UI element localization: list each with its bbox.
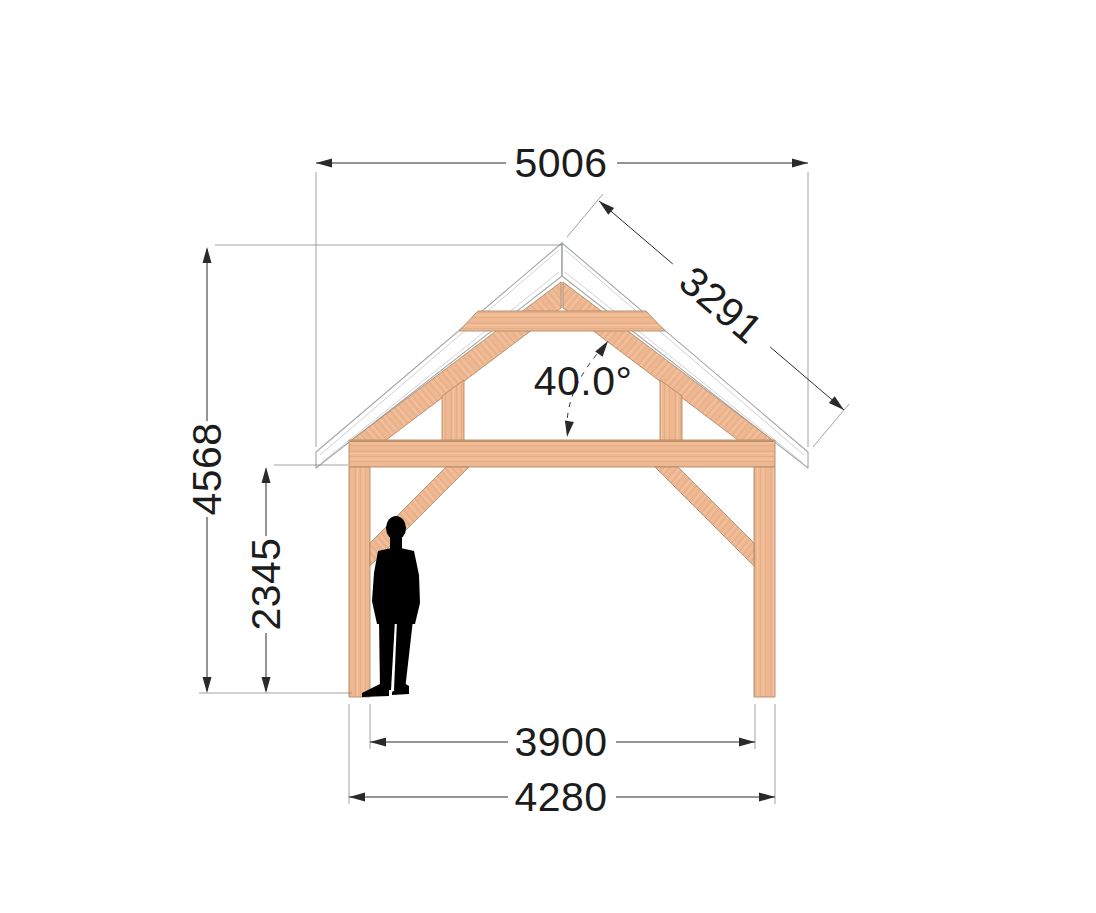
ext-line <box>813 404 849 447</box>
knee-brace-right <box>655 467 754 566</box>
dim-roof-angle: 40.0° <box>534 341 633 437</box>
silhouette-leg-right <box>394 620 413 690</box>
arrow-lower <box>829 396 844 410</box>
dim-clearance-height: 2345 <box>243 465 348 693</box>
dimensions: 5006 3291 40.0° 4568 <box>184 140 849 820</box>
arrow-upper <box>599 201 614 215</box>
dim-label-rafter-length: 3291 <box>671 257 772 352</box>
roof-fascia-line-left-top <box>320 250 559 455</box>
ext-line <box>567 194 603 237</box>
arrow-right <box>792 159 808 168</box>
arrow-right <box>739 738 755 747</box>
dim-label-roof-angle: 40.0° <box>534 358 633 404</box>
arrow-right <box>759 793 775 802</box>
arrow-bottom <box>262 677 271 693</box>
arrow-left <box>370 738 386 747</box>
tie-beam <box>349 440 775 467</box>
elevation-drawing: 5006 3291 40.0° 4568 <box>0 0 1096 913</box>
post-right <box>754 467 775 697</box>
dim-label-outer-span: 4280 <box>514 774 607 820</box>
silhouette-leg-left <box>379 620 395 690</box>
silhouette-torso <box>372 547 420 624</box>
arrow-top <box>262 467 271 483</box>
roof-panel-left <box>316 243 562 468</box>
arrow-left <box>316 159 332 168</box>
drawing-canvas: 5006 3291 40.0° 4568 <box>0 0 1096 913</box>
collar-tie <box>459 311 665 331</box>
post-left <box>349 467 370 697</box>
arrow-left <box>349 793 365 802</box>
arrow-bottom <box>203 677 212 693</box>
dim-label-inner-span: 3900 <box>514 719 607 765</box>
arrow-to-rafter <box>595 341 608 357</box>
roof-fascia-line-left-bottom <box>322 272 559 462</box>
dim-label-overall-width: 5006 <box>514 140 607 186</box>
dim-label-overall-height: 4568 <box>184 422 230 515</box>
dim-inner-span: 3900 <box>370 704 755 765</box>
arrow-to-beam <box>565 421 574 438</box>
dim-label-clearance-height: 2345 <box>243 537 289 630</box>
arrow-top <box>203 247 212 263</box>
silhouette-head <box>386 516 406 540</box>
